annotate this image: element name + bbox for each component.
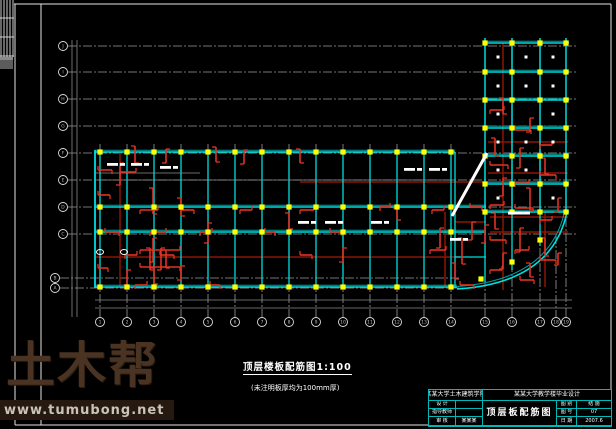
column-marker bbox=[563, 69, 568, 74]
column-marker bbox=[482, 125, 487, 130]
column-marker bbox=[232, 284, 237, 289]
drawing-caption: 顶层楼板配筋图1:100 (未注明板厚均为100mm厚) bbox=[243, 355, 352, 394]
column-marker bbox=[286, 229, 291, 234]
column-marker bbox=[509, 181, 514, 186]
title-block-value bbox=[456, 409, 483, 417]
column-marker bbox=[448, 204, 453, 209]
column-marker bbox=[151, 284, 156, 289]
column-marker bbox=[563, 97, 568, 102]
column-marker bbox=[367, 229, 372, 234]
column-marker bbox=[367, 149, 372, 154]
svg-text:J: J bbox=[61, 44, 63, 50]
column-marker bbox=[313, 149, 318, 154]
column-marker bbox=[340, 229, 345, 234]
column-marker bbox=[509, 153, 514, 158]
column-marker bbox=[537, 209, 542, 214]
column-marker bbox=[537, 97, 542, 102]
column-marker bbox=[232, 229, 237, 234]
column-marker bbox=[124, 204, 129, 209]
svg-text:1: 1 bbox=[99, 320, 102, 326]
column-marker bbox=[482, 181, 487, 186]
column-marker bbox=[537, 125, 542, 130]
column-marker bbox=[286, 149, 291, 154]
title-block-label: 审 核 bbox=[429, 417, 456, 426]
svg-text:E: E bbox=[62, 178, 65, 184]
column-marker bbox=[97, 229, 102, 234]
column-marker bbox=[537, 40, 542, 45]
svg-text:8: 8 bbox=[288, 320, 291, 326]
column-marker bbox=[448, 284, 453, 289]
column-marker bbox=[124, 284, 129, 289]
column-marker bbox=[178, 149, 183, 154]
svg-text:2: 2 bbox=[126, 320, 129, 326]
column-marker bbox=[421, 204, 426, 209]
title-block-value: 结 施 bbox=[577, 401, 611, 409]
column-marker bbox=[124, 149, 129, 154]
watermark-logo: 土木帮 bbox=[6, 341, 159, 390]
column-marker bbox=[313, 284, 318, 289]
caption-note: (未注明板厚均为100mm厚) bbox=[251, 384, 339, 392]
title-block-label: 设 计 bbox=[429, 401, 456, 409]
column-marker bbox=[124, 229, 129, 234]
column-marker bbox=[151, 229, 156, 234]
title-block-label: 图 号 bbox=[557, 409, 577, 417]
svg-text:H: H bbox=[61, 97, 64, 103]
column-marker bbox=[509, 259, 514, 264]
column-marker bbox=[178, 204, 183, 209]
watermark-url-bar: www.tumubong.net bbox=[0, 400, 174, 420]
svg-text:I: I bbox=[62, 70, 63, 76]
column-marker bbox=[509, 69, 514, 74]
caption-title: 顶层楼板配筋图1:100 bbox=[243, 359, 352, 375]
column-marker bbox=[340, 204, 345, 209]
column-marker bbox=[482, 97, 487, 102]
svg-text:18: 18 bbox=[553, 320, 559, 326]
column-marker bbox=[232, 204, 237, 209]
column-marker bbox=[313, 204, 318, 209]
column-marker bbox=[509, 125, 514, 130]
column-marker bbox=[509, 40, 514, 45]
axis-grid-layer bbox=[60, 38, 578, 317]
column-marker bbox=[340, 284, 345, 289]
column-marker bbox=[340, 149, 345, 154]
svg-text:4: 4 bbox=[180, 320, 183, 326]
column-marker bbox=[563, 40, 568, 45]
svg-text:5: 5 bbox=[207, 320, 210, 326]
column-marker bbox=[286, 204, 291, 209]
svg-text:11: 11 bbox=[367, 320, 373, 326]
column-marker bbox=[563, 181, 568, 186]
column-marker bbox=[151, 149, 156, 154]
column-marker bbox=[563, 153, 568, 158]
column-marker bbox=[232, 149, 237, 154]
column-marker bbox=[313, 229, 318, 234]
column-marker bbox=[394, 229, 399, 234]
column-marker bbox=[482, 209, 487, 214]
column-marker bbox=[259, 204, 264, 209]
title-block-label: 日 期 bbox=[557, 417, 577, 426]
svg-text:13: 13 bbox=[421, 320, 427, 326]
svg-text:F: F bbox=[62, 151, 65, 157]
cad-drawing-viewport: JIHGFEDCBA12345678910111213141516171819 … bbox=[0, 0, 616, 429]
column-marker bbox=[537, 237, 542, 242]
svg-text:16: 16 bbox=[509, 320, 515, 326]
title-block-school: 某某大学土木建筑学院 bbox=[429, 390, 483, 401]
column-marker bbox=[421, 229, 426, 234]
column-marker bbox=[537, 69, 542, 74]
column-marker bbox=[537, 153, 542, 158]
column-marker bbox=[151, 204, 156, 209]
column-marker bbox=[448, 149, 453, 154]
svg-text:B: B bbox=[53, 276, 56, 282]
svg-text:19: 19 bbox=[563, 320, 569, 326]
column-marker bbox=[286, 284, 291, 289]
title-block-value: 某某某 bbox=[456, 417, 483, 426]
title-block-value: 2007.6 bbox=[577, 417, 611, 426]
column-marker bbox=[97, 284, 102, 289]
column-marker bbox=[394, 149, 399, 154]
svg-text:10: 10 bbox=[340, 320, 346, 326]
column-marker bbox=[205, 149, 210, 154]
title-block-label: 指导教师 bbox=[429, 409, 456, 417]
svg-text:15: 15 bbox=[482, 320, 488, 326]
column-marker bbox=[394, 284, 399, 289]
column-marker bbox=[97, 149, 102, 154]
column-marker bbox=[367, 204, 372, 209]
svg-text:6: 6 bbox=[234, 320, 237, 326]
column-marker bbox=[367, 284, 372, 289]
svg-text:3: 3 bbox=[153, 320, 156, 326]
column-marker bbox=[448, 229, 453, 234]
column-marker bbox=[178, 284, 183, 289]
column-marker bbox=[478, 276, 483, 281]
column-marker bbox=[482, 40, 487, 45]
title-block-project: 某某大学教学楼毕业设计 bbox=[483, 390, 611, 401]
svg-text:7: 7 bbox=[261, 320, 264, 326]
column-marker bbox=[97, 204, 102, 209]
title-block-drawing-title: 顶层板配筋图 bbox=[483, 401, 557, 426]
column-marker bbox=[563, 125, 568, 130]
title-block-value: 07 bbox=[577, 409, 611, 417]
column-marker bbox=[259, 284, 264, 289]
column-marker bbox=[421, 284, 426, 289]
column-marker bbox=[537, 181, 542, 186]
column-marker bbox=[563, 209, 568, 214]
column-marker bbox=[509, 97, 514, 102]
column-marker bbox=[205, 229, 210, 234]
title-block-label: 图 别 bbox=[557, 401, 577, 409]
column-marker bbox=[259, 229, 264, 234]
title-block-value bbox=[456, 401, 483, 409]
svg-text:9: 9 bbox=[315, 320, 318, 326]
column-marker bbox=[394, 204, 399, 209]
column-marker bbox=[205, 204, 210, 209]
watermark-url: www.tumubong.net bbox=[0, 403, 164, 418]
column-marker bbox=[205, 284, 210, 289]
column-marker bbox=[482, 69, 487, 74]
column-marker bbox=[178, 229, 183, 234]
column-marker bbox=[421, 149, 426, 154]
svg-text:14: 14 bbox=[448, 320, 454, 326]
column-marker bbox=[259, 149, 264, 154]
svg-text:12: 12 bbox=[394, 320, 400, 326]
svg-text:17: 17 bbox=[537, 320, 543, 326]
title-block: 某某大学土木建筑学院 某某大学教学楼毕业设计 设 计 指导教师 审 核 某某某 … bbox=[428, 389, 612, 427]
svg-text:G: G bbox=[61, 124, 65, 130]
svg-text:D: D bbox=[61, 205, 65, 211]
svg-text:C: C bbox=[61, 232, 64, 238]
